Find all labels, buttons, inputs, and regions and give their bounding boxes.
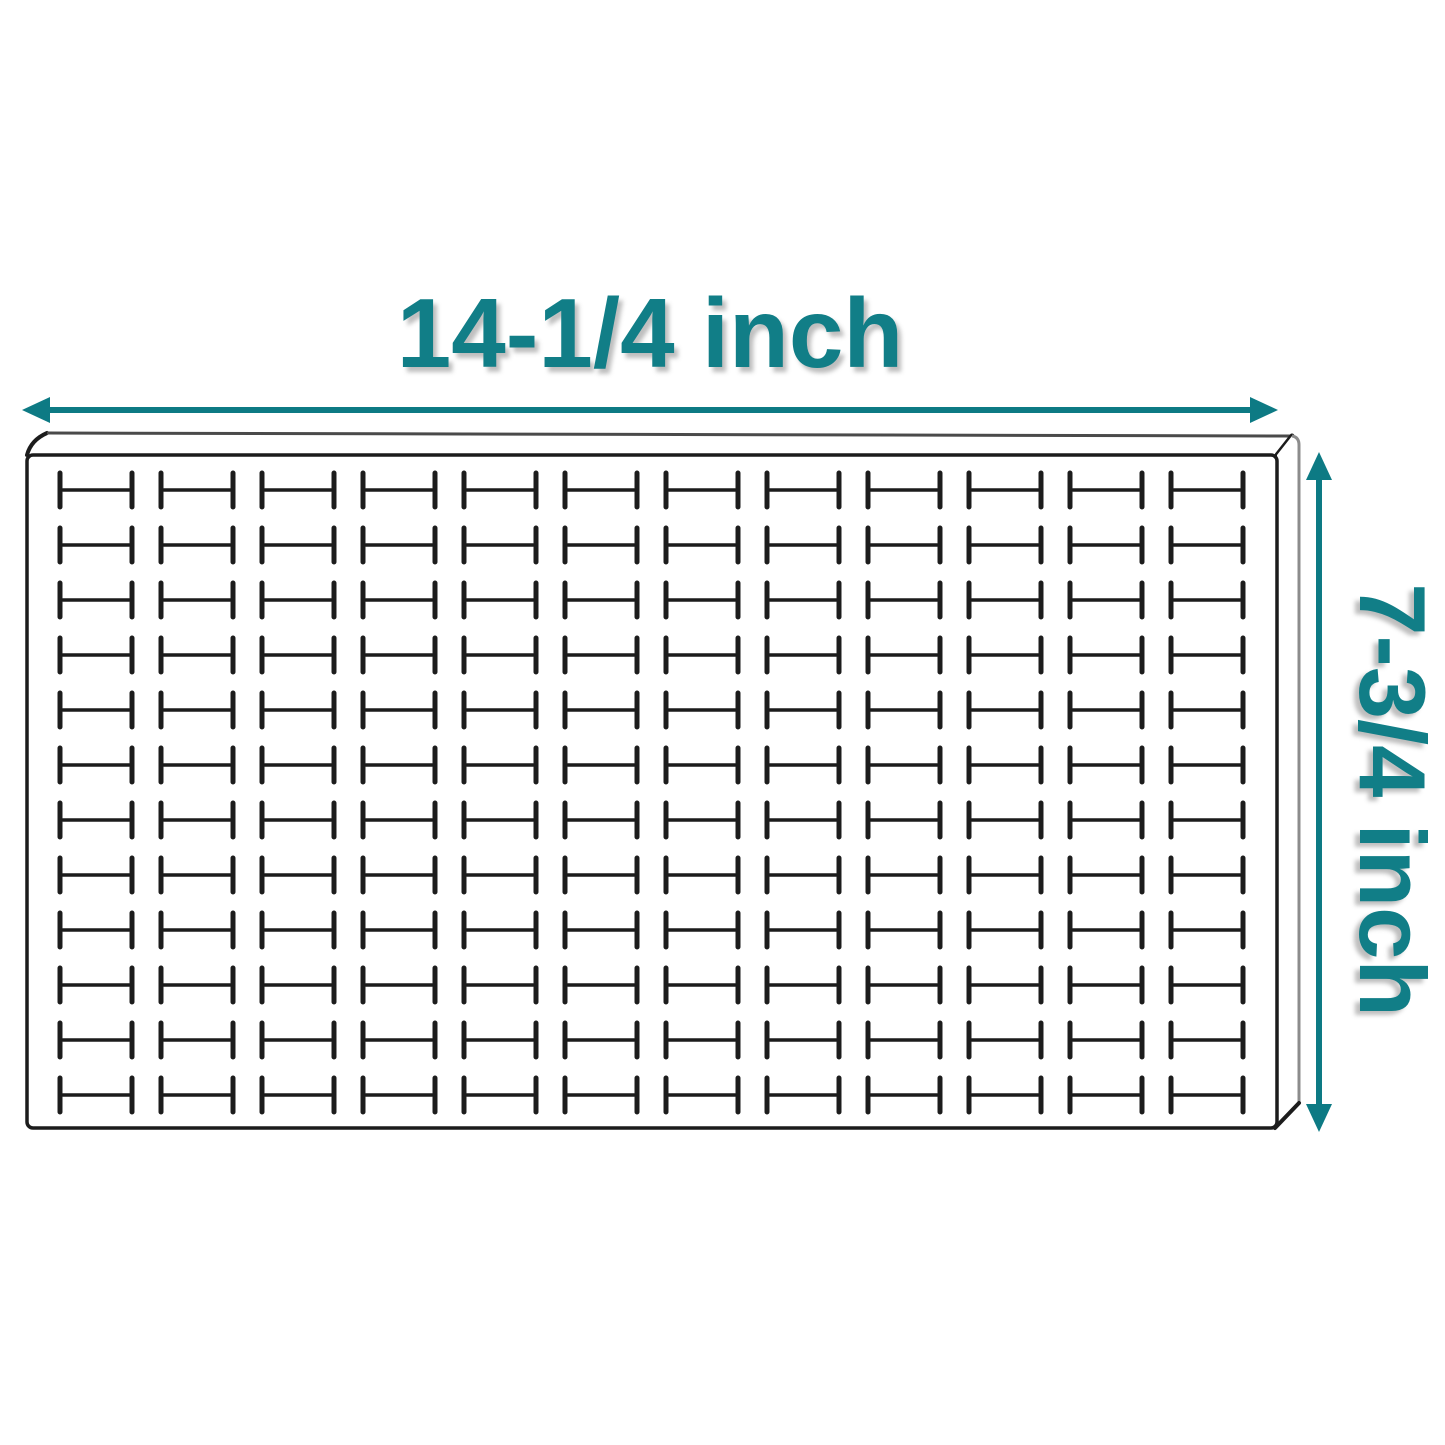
height-arrow-bottom-head: [1306, 1104, 1332, 1132]
width-arrow-right-head: [1250, 397, 1278, 423]
width-arrow-left-head: [22, 397, 50, 423]
tray-dimension-diagram: [0, 0, 1445, 1445]
width-arrow-icon: [22, 397, 1278, 423]
diagram-canvas: 14-1/4 inch 7-3/4 inch: [0, 0, 1445, 1445]
height-arrow-icon: [1306, 452, 1332, 1132]
tray-top-face: [27, 433, 1292, 455]
height-arrow-top-head: [1306, 452, 1332, 480]
tray-front-face: [27, 455, 1277, 1128]
